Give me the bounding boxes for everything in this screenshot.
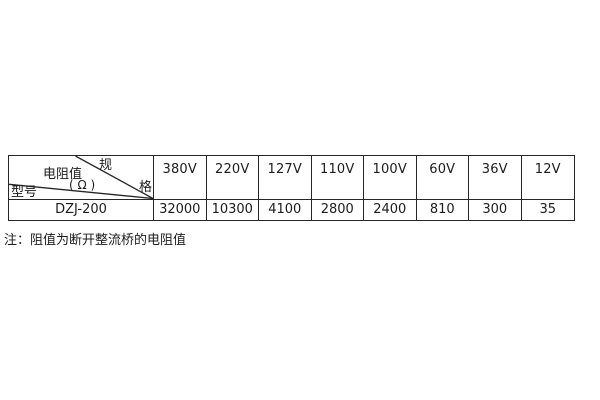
diagonal-header-cell: 规 格 电阻值 ( Ω ) 型号 (9, 156, 154, 200)
spec-label-bottom-char: 格 (139, 181, 152, 194)
value-cell-127v: 4100 (259, 200, 312, 221)
voltage-header-220v: 220V (207, 156, 260, 200)
value-cell-110v: 2800 (312, 200, 365, 221)
resistance-unit-label: ( Ω ) (69, 179, 95, 191)
model-label: 型号 (11, 186, 37, 199)
resistance-spec-table: 规 格 电阻值 ( Ω ) 型号 380V 220V 127V 110V 100… (8, 155, 575, 221)
value-cell-100v: 2400 (364, 200, 417, 221)
value-cell-12v: 35 (522, 200, 575, 221)
value-cell-220v: 10300 (207, 200, 260, 221)
voltage-header-100v: 100V (364, 156, 417, 200)
model-cell: DZJ-200 (9, 200, 154, 221)
value-cell-380v: 32000 (154, 200, 207, 221)
voltage-header-60v: 60V (417, 156, 470, 200)
voltage-header-380v: 380V (154, 156, 207, 200)
value-cell-60v: 810 (417, 200, 470, 221)
page: 规 格 电阻值 ( Ω ) 型号 380V 220V 127V 110V 100… (0, 0, 600, 400)
voltage-header-36v: 36V (469, 156, 522, 200)
voltage-header-12v: 12V (522, 156, 575, 200)
voltage-header-127v: 127V (259, 156, 312, 200)
value-cell-36v: 300 (469, 200, 522, 221)
footnote: 注：阻值为断开整流桥的电阻值 (4, 229, 186, 248)
spec-label-top-char: 规 (99, 159, 112, 172)
voltage-header-110v: 110V (312, 156, 365, 200)
